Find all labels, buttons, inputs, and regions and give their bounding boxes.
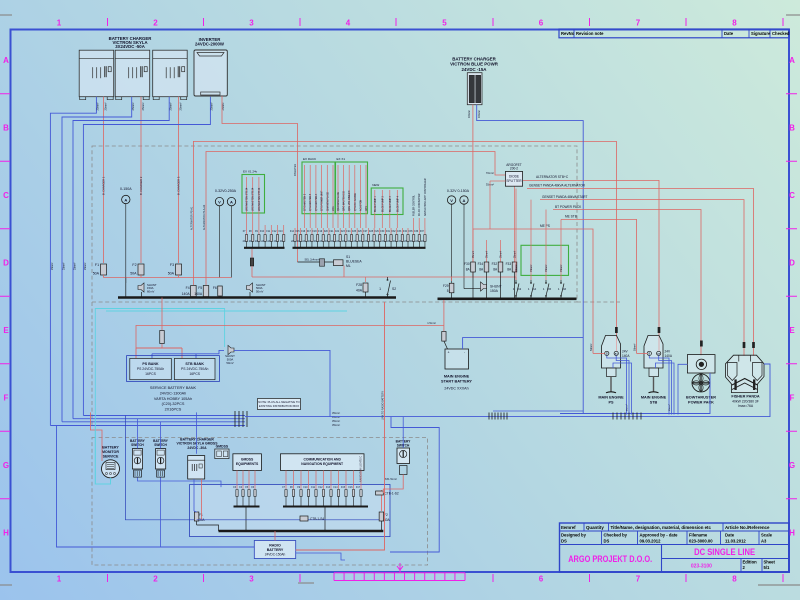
svg-text:150A: 150A <box>490 289 499 293</box>
svg-text:F1: F1 <box>95 263 99 267</box>
svg-text:16mm²: 16mm² <box>467 110 471 118</box>
svg-text:2A: 2A <box>398 240 401 243</box>
svg-text:0-150A: 0-150A <box>120 187 132 191</box>
svg-text:25mm²: 25mm² <box>169 102 173 110</box>
svg-text:3X24VDC -50A: 3X24VDC -50A <box>115 44 145 49</box>
svg-text:Itemref: Itemref <box>561 525 576 530</box>
svg-text:S5: S5 <box>548 287 552 291</box>
svg-text:Article No./Reference: Article No./Reference <box>725 525 770 530</box>
svg-text:50mm²: 50mm² <box>590 343 593 351</box>
svg-text:LINK TO RADIO BATTERY: LINK TO RADIO BATTERY <box>382 391 385 420</box>
svg-text:3: 3 <box>249 19 254 28</box>
svg-text:BATTERY: BATTERY <box>267 548 284 552</box>
svg-text:1: 1 <box>57 19 62 28</box>
svg-text:ARGO PROJEKT D.O.O.: ARGO PROJEKT D.O.O. <box>568 554 652 565</box>
svg-text:F27: F27 <box>363 231 368 233</box>
svg-text:ALTERNATOR PILA-A2: ALTERNATOR PILA-A2 <box>203 204 206 230</box>
svg-text:QTG MASTEN 8: QTG MASTEN 8 <box>309 193 312 211</box>
svg-text:EX X1 24v: EX X1 24v <box>243 170 258 174</box>
svg-text:25mm²: 25mm² <box>63 262 66 270</box>
svg-text:3: 3 <box>249 575 254 584</box>
svg-text:GMDSS: GMDSS <box>216 445 229 449</box>
svg-text:Quantity: Quantity <box>586 525 604 530</box>
svg-text:35mm²: 35mm² <box>332 419 340 423</box>
svg-text:F20: F20 <box>324 231 329 233</box>
svg-text:Scale: Scale <box>761 533 773 538</box>
svg-text:2A: 2A <box>336 240 339 243</box>
svg-text:F31: F31 <box>386 231 391 233</box>
svg-text:GENSET PANDA 48kVA ALTERNATOR: GENSET PANDA 48kVA ALTERNATOR <box>529 184 586 188</box>
svg-text:F17: F17 <box>307 231 312 233</box>
svg-text:50A: 50A <box>168 272 175 276</box>
svg-text:VARTA HOBBY 105Ah: VARTA HOBBY 105Ah <box>154 397 192 401</box>
svg-text:RADIO: RADIO <box>269 544 281 548</box>
svg-text:SEL 2x4mm²: SEL 2x4mm² <box>305 257 320 261</box>
svg-text:6: 6 <box>539 19 544 28</box>
svg-text:25mm²: 25mm² <box>104 102 108 110</box>
svg-text:BATTERY: BATTERY <box>102 446 119 450</box>
svg-text:F30: F30 <box>380 231 385 233</box>
svg-text:F29: F29 <box>375 231 380 233</box>
svg-text:Designed by: Designed by <box>561 533 587 538</box>
svg-text:E: E <box>789 326 795 335</box>
svg-text:F37: F37 <box>420 231 425 233</box>
svg-text:140A: 140A <box>182 292 191 296</box>
svg-text:ME PS: ME PS <box>540 224 550 228</box>
svg-text:FUELER CONTROL: FUELER CONTROL <box>414 194 416 216</box>
svg-text:BT POWER PACK: BT POWER PACK <box>555 205 582 209</box>
svg-text:F23: F23 <box>341 231 346 233</box>
svg-text:2A: 2A <box>381 240 384 243</box>
svg-text:2A: 2A <box>243 240 246 243</box>
svg-text:2A: 2A <box>387 240 390 243</box>
svg-text:200-2: 200-2 <box>510 167 518 171</box>
svg-text:24VDC-150Ah: 24VDC-150Ah <box>265 553 286 557</box>
svg-text:Signature: Signature <box>751 31 771 36</box>
svg-text:24VDC XXXAh: 24VDC XXXAh <box>444 387 468 391</box>
svg-text:95mm²: 95mm² <box>626 404 629 411</box>
svg-text:GENSET PANDA 48kVA START: GENSET PANDA 48kVA START <box>542 195 587 199</box>
svg-text:Imax=76A: Imax=76A <box>738 404 754 408</box>
svg-text:F13: F13 <box>279 231 284 233</box>
svg-text:2A: 2A <box>331 240 334 243</box>
svg-text:SPLITTER: SPLITTER <box>506 179 522 183</box>
svg-text:B. CHARGER 2: B. CHARGER 2 <box>139 176 143 195</box>
svg-text:F24: F24 <box>346 231 351 233</box>
svg-text:2A: 2A <box>410 240 413 243</box>
svg-text:023-3100: 023-3100 <box>691 563 712 569</box>
svg-text:LOA: LOA <box>332 206 335 211</box>
svg-text:24VDC-2000W: 24VDC-2000W <box>195 41 225 46</box>
svg-text:COMMUNICATION AND: COMMUNICATION AND <box>303 458 341 462</box>
svg-text:2A: 2A <box>314 240 317 243</box>
svg-text:F9: F9 <box>255 231 258 233</box>
svg-text:1: 1 <box>528 287 530 291</box>
svg-text:EX X1: EX X1 <box>337 157 346 161</box>
svg-text:F7: F7 <box>243 231 246 233</box>
svg-text:GMDSS: GMDSS <box>241 458 254 462</box>
svg-text:7: 7 <box>636 575 641 584</box>
svg-text:2X16PCS: 2X16PCS <box>165 408 182 412</box>
svg-text:STB BANK: STB BANK <box>185 362 204 366</box>
svg-text:2A: 2A <box>353 240 356 243</box>
svg-text:25mm²: 25mm² <box>210 102 214 110</box>
svg-text:24VDC -15A: 24VDC -15A <box>462 67 488 72</box>
svg-text:16PCS: 16PCS <box>145 372 156 376</box>
svg-text:F28: F28 <box>356 283 362 287</box>
svg-text:8A: 8A <box>479 268 484 272</box>
svg-text:BILGE PUMP 3: BILGE PUMP 3 <box>390 195 392 212</box>
svg-text:6X1.5mm²: 6X1.5mm² <box>385 477 397 481</box>
svg-text:F1: F1 <box>199 513 203 517</box>
svg-text:4: 4 <box>346 19 351 28</box>
svg-text:40kW 220/380 3F: 40kW 220/380 3F <box>732 400 759 404</box>
svg-text:START BATTERY: START BATTERY <box>441 380 472 384</box>
svg-text:A3: A3 <box>761 539 767 544</box>
svg-text:A: A <box>230 199 233 204</box>
svg-text:60mV: 60mV <box>147 289 154 293</box>
svg-text:70mm²: 70mm² <box>545 264 548 272</box>
svg-text:50mV: 50mV <box>256 289 263 293</box>
svg-text:G: G <box>789 461 795 470</box>
svg-text:(C20)-32PCS: (C20)-32PCS <box>162 402 185 406</box>
svg-text:QTG POWER UNIT: QTG POWER UNIT <box>322 190 324 211</box>
svg-text:+: + <box>447 351 449 355</box>
svg-text:SERVICE: SERVICE <box>103 455 119 459</box>
svg-text:F33: F33 <box>397 231 402 233</box>
svg-text:F8: F8 <box>249 231 252 233</box>
svg-text:1: 1 <box>57 575 62 584</box>
svg-text:2A: 2A <box>348 240 351 243</box>
svg-text:F: F <box>4 394 9 403</box>
svg-text:QRG VHF DIMER 8: QRG VHF DIMER 8 <box>349 190 351 211</box>
svg-text:QTG DC GAUGE: QTG DC GAUGE <box>354 193 357 211</box>
svg-text:PS 24VDC-750Ah: PS 24VDC-750Ah <box>181 367 208 371</box>
svg-text:S: S <box>606 352 608 356</box>
svg-text:F32: F32 <box>492 262 498 266</box>
svg-text:ACUSTON: ACUSTON <box>359 199 362 211</box>
svg-text:F34: F34 <box>403 231 408 233</box>
svg-text:ML: ML <box>346 264 351 268</box>
svg-text:8A: 8A <box>507 268 512 272</box>
svg-text:2A: 2A <box>308 240 311 243</box>
svg-text:A: A <box>3 56 9 65</box>
svg-text:Date: Date <box>724 31 734 36</box>
svg-text:CTB-1-S2: CTB-1-S2 <box>385 492 399 496</box>
svg-text:F32: F32 <box>392 231 397 233</box>
svg-text:S3: S3 <box>518 287 522 291</box>
svg-text:2A: 2A <box>404 240 407 243</box>
svg-text:LRG MASTEN STB 24: LRG MASTEN STB 24 <box>246 187 249 211</box>
svg-text:B. CHARGER 1: B. CHARGER 1 <box>102 176 106 195</box>
svg-text:F3: F3 <box>170 263 174 267</box>
svg-text:PS BANK: PS BANK <box>142 362 159 366</box>
svg-text:A: A <box>463 198 466 203</box>
svg-text:Approved by - date: Approved by - date <box>640 533 679 538</box>
svg-text:S6: S6 <box>563 287 567 291</box>
svg-text:D: D <box>789 259 795 268</box>
svg-text:2A: 2A <box>255 240 258 243</box>
svg-text:70mm²: 70mm² <box>486 171 494 175</box>
svg-text:0-32V 0-150A: 0-32V 0-150A <box>447 189 470 193</box>
svg-text:2A: 2A <box>261 240 264 243</box>
svg-text:Edition: Edition <box>743 560 758 565</box>
svg-text:2A: 2A <box>376 240 379 243</box>
svg-text:INVERTER: INVERTER <box>294 164 297 176</box>
svg-text:F16: F16 <box>301 231 306 233</box>
svg-text:Checked: Checked <box>772 31 790 36</box>
svg-text:95mm²: 95mm² <box>668 404 671 411</box>
svg-text:QTG MASTEN 2: QTG MASTEN 2 <box>304 193 307 211</box>
svg-text:35mm²: 35mm² <box>472 251 475 258</box>
svg-text:A: A <box>789 56 795 65</box>
svg-text:ALTERNATOR PS-A1: ALTERNATOR PS-A1 <box>190 206 193 230</box>
svg-text:B: B <box>3 124 9 133</box>
svg-text:BILGE PUMP 2: BILGE PUMP 2 <box>382 195 384 212</box>
svg-text:24VDC -30A: 24VDC -30A <box>187 446 207 450</box>
svg-text:2A: 2A <box>274 240 277 243</box>
svg-text:F30: F30 <box>464 262 470 266</box>
svg-text:7: 7 <box>636 19 641 28</box>
svg-text:DIODE: DIODE <box>509 175 519 179</box>
svg-text:DC SINGLE LINE: DC SINGLE LINE <box>694 547 755 558</box>
svg-text:CTB-1-S4: CTB-1-S4 <box>310 517 324 521</box>
svg-text:BLUESEA: BLUESEA <box>346 260 362 264</box>
svg-text:DS: DS <box>604 539 610 544</box>
svg-text:50A: 50A <box>130 272 137 276</box>
svg-text:V: V <box>218 199 221 204</box>
svg-text:2A: 2A <box>297 240 300 243</box>
svg-text:F: F <box>790 394 795 403</box>
svg-text:F5: F5 <box>198 286 202 290</box>
svg-text:24VDC-1300Ah: 24VDC-1300Ah <box>160 391 187 395</box>
svg-text:35mm²: 35mm² <box>332 411 340 415</box>
svg-text:F6: F6 <box>213 286 217 290</box>
svg-text:LRG MASTEN STB 24: LRG MASTEN STB 24 <box>258 187 261 211</box>
svg-text:16mm²: 16mm² <box>477 110 481 118</box>
svg-text:H: H <box>789 529 795 538</box>
svg-text:BILGE PUMP 1: BILGE PUMP 1 <box>375 195 377 212</box>
svg-text:25mm²: 25mm² <box>84 262 87 270</box>
svg-text:40A: 40A <box>356 289 363 293</box>
svg-text:2A: 2A <box>415 240 418 243</box>
svg-text:F2: F2 <box>132 263 136 267</box>
svg-text:24V: 24V <box>665 350 672 354</box>
svg-text:35mm²: 35mm² <box>500 251 503 258</box>
svg-text:NAVIGATION EQUIPMENT: NAVIGATION EQUIPMENT <box>301 462 344 466</box>
svg-text:F21: F21 <box>329 231 334 233</box>
svg-text:Checked by: Checked by <box>604 533 628 538</box>
svg-text:BOWTHRUSTER: BOWTHRUSTER <box>686 396 716 400</box>
svg-text:1.5mm²: 1.5mm² <box>427 321 436 325</box>
svg-text:GPS: GPS <box>366 206 368 211</box>
svg-text:NEW: NEW <box>372 183 379 187</box>
svg-text:25mm²: 25mm² <box>96 102 100 110</box>
svg-text:F35: F35 <box>409 231 414 233</box>
svg-text:Title/Name, designation, mater: Title/Name, designation, material, dimen… <box>611 525 712 530</box>
svg-text:1: 1 <box>558 287 560 291</box>
svg-text:5/1: 5/1 <box>764 565 770 570</box>
svg-text:8: 8 <box>732 19 737 28</box>
svg-text:S4: S4 <box>533 287 537 291</box>
svg-text:2A: 2A <box>325 240 328 243</box>
svg-text:25mm²: 25mm² <box>51 262 54 270</box>
svg-text:F28: F28 <box>369 231 374 233</box>
svg-text:F25: F25 <box>352 231 357 233</box>
svg-text:F11: F11 <box>266 231 271 233</box>
svg-text:2A: 2A <box>370 240 373 243</box>
svg-text:8A: 8A <box>493 268 498 272</box>
svg-text:2: 2 <box>153 19 158 28</box>
svg-text:FISHER PANDA: FISHER PANDA <box>731 395 759 399</box>
svg-text:5: 5 <box>442 19 447 28</box>
svg-text:8: 8 <box>732 575 737 584</box>
svg-text:25mm²: 25mm² <box>179 102 183 110</box>
svg-text:35mm²: 35mm² <box>332 423 340 427</box>
svg-text:QRA NEW PLACE: QRA NEW PLACE <box>337 192 340 211</box>
svg-text:Revision note: Revision note <box>576 31 604 36</box>
svg-text:6: 6 <box>539 575 544 584</box>
svg-text:C: C <box>789 191 795 200</box>
svg-text:QNA NEW PLACE: QNA NEW PLACE <box>326 192 329 211</box>
svg-text:2A: 2A <box>421 240 424 243</box>
svg-text:QTG MASTEN A: QTG MASTEN A <box>315 193 318 211</box>
svg-text:EQUIPMENTS: EQUIPMENTS <box>236 462 259 466</box>
svg-text:E: E <box>3 326 9 335</box>
svg-text:S2: S2 <box>392 287 396 291</box>
svg-text:F19: F19 <box>318 231 323 233</box>
svg-text:EX RACK: EX RACK <box>303 157 316 161</box>
svg-text:NAVIGATION LIGHT CONTROLLER: NAVIGATION LIGHT CONTROLLER <box>424 178 427 216</box>
svg-text:16PCS: 16PCS <box>189 372 200 376</box>
svg-text:2A: 2A <box>291 240 294 243</box>
svg-text:V: V <box>450 198 453 203</box>
svg-text:F14: F14 <box>290 231 295 233</box>
svg-text:2A: 2A <box>393 240 396 243</box>
svg-text:1: 1 <box>543 287 545 291</box>
svg-text:MONITOR: MONITOR <box>102 450 119 454</box>
svg-text:2A: 2A <box>359 240 362 243</box>
svg-text:B. CHARGER 3: B. CHARGER 3 <box>177 176 181 195</box>
svg-text:70mm²: 70mm² <box>530 264 533 272</box>
svg-text:S1: S1 <box>346 255 350 259</box>
svg-text:11.03.2012: 11.03.2012 <box>725 539 746 544</box>
svg-text:RevNo: RevNo <box>561 31 575 36</box>
svg-text:50A: 50A <box>93 272 100 276</box>
svg-text:25mm²: 25mm² <box>131 102 135 110</box>
svg-text:Sheet: Sheet <box>764 560 776 565</box>
svg-text:PS 24VDC-750Ah: PS 24VDC-750Ah <box>137 367 164 371</box>
svg-text:2A: 2A <box>280 240 283 243</box>
svg-text:F29: F29 <box>443 284 449 288</box>
svg-text:2A: 2A <box>267 240 270 243</box>
svg-text:25mm²: 25mm² <box>74 262 77 270</box>
svg-text:1: 1 <box>379 287 381 291</box>
svg-text:QRG MASTEN 915: QRG MASTEN 915 <box>343 190 346 211</box>
svg-text:25mm²: 25mm² <box>141 102 145 110</box>
svg-text:SHUNT: SHUNT <box>490 285 502 289</box>
svg-text:8A: 8A <box>466 268 471 272</box>
svg-text:PS: PS <box>608 401 614 405</box>
svg-text:D: D <box>3 259 9 268</box>
svg-text:B: B <box>789 124 795 133</box>
svg-text:STB: STB <box>650 401 658 405</box>
svg-text:2: 2 <box>743 565 746 570</box>
svg-text:2A: 2A <box>249 240 252 243</box>
svg-text:2: 2 <box>153 575 158 584</box>
svg-text:2A: 2A <box>319 240 322 243</box>
svg-text:C: C <box>3 191 9 200</box>
svg-text:24V: 24V <box>622 350 629 354</box>
svg-text:023-3000.00: 023-3000.00 <box>689 539 713 544</box>
svg-text:70mm²: 70mm² <box>515 264 518 272</box>
svg-text:F4: F4 <box>186 286 190 290</box>
svg-text:LRG MASTEN STB 24: LRG MASTEN STB 24 <box>252 187 255 211</box>
svg-text:5: 5 <box>447 289 449 293</box>
svg-text:Date: Date <box>725 533 735 538</box>
svg-text:EXISTING DISTRIBUTION BOX: EXISTING DISTRIBUTION BOX <box>259 404 299 408</box>
svg-text:40A: 40A <box>384 518 391 522</box>
svg-text:09.03.2012: 09.03.2012 <box>640 539 662 544</box>
svg-text:F10: F10 <box>260 231 265 233</box>
svg-text:G: G <box>3 461 9 470</box>
svg-text:F22: F22 <box>335 231 340 233</box>
svg-text:F18: F18 <box>313 231 318 233</box>
svg-text:70mm²: 70mm² <box>560 264 563 272</box>
svg-text:50mV: 50mV <box>226 361 233 365</box>
svg-text:MAIN ENGINE: MAIN ENGINE <box>598 396 624 400</box>
svg-text:F36: F36 <box>414 231 419 233</box>
svg-text:2A: 2A <box>302 240 305 243</box>
svg-text:MAIN ENGINE: MAIN ENGINE <box>444 375 470 379</box>
svg-text:ME STB: ME STB <box>565 215 577 219</box>
svg-text:BILGE PUMP 4: BILGE PUMP 4 <box>397 195 399 212</box>
svg-text:50mm²: 50mm² <box>634 343 637 351</box>
svg-text:ALTERNATOR STB+C: ALTERNATOR STB+C <box>536 175 569 179</box>
svg-text:MAIN ENGINE: MAIN ENGINE <box>641 396 667 400</box>
svg-text:2A: 2A <box>365 240 368 243</box>
svg-text:F33: F33 <box>506 262 512 266</box>
svg-text:35mm²: 35mm² <box>486 251 489 258</box>
svg-text:F34: F34 <box>478 262 484 266</box>
svg-text:0-32V0-250A: 0-32V0-250A <box>215 189 237 193</box>
svg-text:DS: DS <box>561 539 567 544</box>
svg-text:H: H <box>3 529 9 538</box>
svg-text:2A: 2A <box>342 240 345 243</box>
svg-text:S: S <box>648 352 650 356</box>
svg-text:140A: 140A <box>194 292 203 296</box>
svg-text:SERVICE BATTERY BANK: SERVICE BATTERY BANK <box>150 386 197 390</box>
svg-text:A: A <box>124 197 127 202</box>
svg-text:F12: F12 <box>272 231 277 233</box>
svg-text:Filename: Filename <box>689 533 708 538</box>
svg-text:140A: 140A <box>665 354 673 358</box>
svg-text:DC-DC CONVERTER: DC-DC CONVERTER <box>419 193 421 216</box>
svg-text:F26: F26 <box>358 231 363 233</box>
svg-text:F15: F15 <box>296 231 301 233</box>
svg-text:140A: 140A <box>622 354 630 358</box>
